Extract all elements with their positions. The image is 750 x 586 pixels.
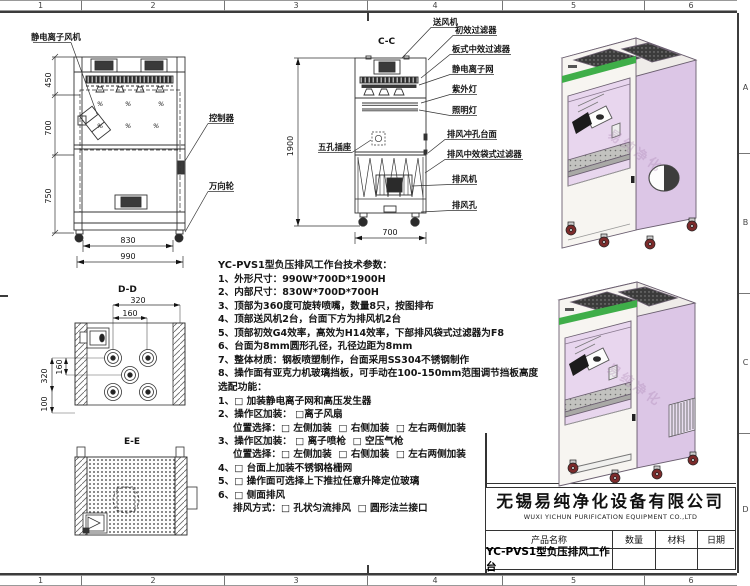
zone-number: 5 (503, 575, 645, 586)
label-controller: 控制器 (209, 113, 235, 123)
zone-number: 5 (503, 0, 645, 11)
spec-item: 2、内部尺寸：830W*700D*700H (218, 286, 518, 299)
zone-divider (739, 153, 750, 154)
zone-divider (739, 433, 750, 434)
zone-number: 2 (82, 0, 225, 11)
center-fold-mark-left (0, 295, 8, 297)
spec-item: 8、操作面有亚克力机玻璃挡板，可手动在100-150mm范围调节挡板高度 (218, 367, 518, 380)
spec-item: 4、顶部送风机2台，台面下方为排风机2台 (218, 313, 518, 326)
option-item: 2、操作区加装： □离子风扇 (218, 408, 518, 421)
svg-text:%: % (153, 122, 159, 130)
door-latch (632, 414, 636, 421)
section-view-drawing: C-C (278, 14, 538, 254)
dd-view-title: D-D (118, 285, 137, 295)
zone-number: 3 (225, 575, 368, 586)
label-primary-filter: 初效过滤器 (455, 25, 497, 35)
dim-700-cc: 700 (382, 228, 397, 237)
dim-1900: 1900 (286, 136, 295, 156)
label-plate-medium-filter: 板式中效过滤器 (452, 44, 511, 54)
render-bottom: 易纯净化 (543, 262, 715, 492)
spec-item: 5、顶部初效G4效率，高效为H14效率，下部排风袋式过滤器为F8 (218, 327, 518, 340)
spec-item: 6、台面为8mm圆形孔径，孔径边距为8mm (218, 340, 518, 353)
quantity-value (613, 549, 656, 569)
option-item: 3、操作区加装： □ 离子喷枪 □ 空压气枪 (218, 435, 518, 448)
label-perforated-worktop: 排风冲孔台面 (447, 129, 497, 139)
render-top: 易纯净化 (548, 18, 713, 263)
center-fold-mark-bottom (367, 565, 369, 573)
dim-700: 700 (44, 120, 53, 135)
spec-item: 7、整体材质：钢板喷塑制作，台面采用SS304不锈钢制作 (218, 354, 518, 367)
zone-column-right: A B C D (737, 13, 750, 573)
option-item: 排风方式：□ 孔状匀流排风 □ 圆形法兰接口 (218, 502, 518, 515)
zone-strip-top: 1 2 3 4 5 6 (0, 0, 737, 13)
brand-mark (568, 65, 577, 68)
label-lighting-lamp: 照明灯 (452, 105, 478, 115)
door-latch (631, 176, 635, 183)
dim-320-top: 320 (130, 296, 145, 305)
col-material: 材料 (656, 531, 698, 549)
zone-number: 4 (368, 0, 503, 11)
label-exhaust-fan: 排风机 (452, 174, 478, 184)
label-exhaust-bag-filter: 排风中效袋式过滤器 (447, 149, 522, 159)
zone-letter: C (739, 358, 750, 367)
side-louver-vent (669, 398, 695, 437)
section-view-title: C-C (378, 37, 396, 47)
company-cell: 无锡易纯净化设备有限公司 WUXI YICHUN PURIFICATION EQ… (486, 488, 735, 531)
svg-text:%: % (125, 100, 131, 108)
dim-320-left: 320 (40, 368, 49, 383)
dim-990: 990 (120, 252, 135, 261)
option-item: 位置选择：□ 左侧加装 □ 右侧加装 □ 左右两侧加装 (218, 422, 518, 435)
spec-item: 3、顶部为360度可旋转喷嘴，数量8只，按图排布 (218, 300, 518, 313)
zone-letter: B (739, 218, 750, 227)
brand-mark (565, 308, 574, 311)
label-electrostatic-ion-fan: 静电离子风机 (31, 32, 81, 42)
zone-number: 6 (645, 0, 737, 11)
option-item: 4、□ 台面上加装不锈钢格栅网 (218, 462, 518, 475)
label-exhaust-hole: 排风孔 (452, 200, 478, 210)
spec-item: 1、外形尺寸：990W*700D*1900H (218, 273, 518, 286)
company-name-en: WUXI YICHUN PURIFICATION EQUIPMENT CO.,L… (486, 513, 735, 521)
svg-text:%: % (97, 122, 103, 130)
drawing-sheet: 1 2 3 4 5 6 1 2 3 4 5 6 A B C D (0, 0, 750, 586)
dim-830: 830 (120, 236, 135, 245)
option-item: 6、□ 侧面排风 (218, 489, 518, 502)
title-block: 无锡易纯净化设备有限公司 WUXI YICHUN PURIFICATION EQ… (485, 487, 736, 570)
label-ion-net: 静电离子网 (452, 64, 494, 74)
dim-450: 450 (44, 72, 53, 87)
technical-specs: YC-PVS1型负压排风工作台技术参数： 1、外形尺寸：990W*700D*19… (218, 259, 518, 516)
front-view-drawing: %%% %%% 450 700 750 830 990 静电离子风机 控制器 万 (25, 28, 237, 273)
option-item: 1、□ 加装静电离子网和高压发生器 (218, 395, 518, 408)
dim-160-top: 160 (122, 309, 137, 318)
svg-text:%: % (158, 100, 164, 108)
svg-text:%: % (97, 100, 103, 108)
company-name-cn: 无锡易纯净化设备有限公司 (486, 491, 735, 513)
material-value (656, 549, 698, 569)
ee-view-drawing: E-E (40, 430, 220, 570)
title-block-value-row: YC-PVS1型负压排风工作台 (486, 549, 735, 569)
zone-divider (739, 293, 750, 294)
dim-100-left: 100 (40, 396, 49, 411)
label-uv-lamp: 紫外灯 (452, 84, 478, 94)
specs-title: YC-PVS1型负压排风工作台技术参数： (218, 259, 518, 273)
dd-view-drawing: D-D (30, 278, 220, 430)
date-value (698, 549, 734, 569)
product-name: YC-PVS1型负压排风工作台 (486, 549, 613, 569)
zone-letter: A (739, 83, 750, 92)
label-socket: 五孔插座 (318, 142, 352, 152)
ee-view-title: E-E (124, 437, 140, 447)
option-item: 5、□ 操作面可选择上下推拉任意升降定位玻璃 (218, 475, 518, 488)
col-quantity: 数量 (613, 531, 656, 549)
zone-number: 3 (225, 0, 368, 11)
dim-750: 750 (44, 188, 53, 203)
options-title: 选配功能： (218, 381, 518, 395)
svg-text:%: % (125, 122, 131, 130)
zone-number: 1 (0, 575, 82, 586)
option-item: 位置选择：□ 左侧加装 □ 右侧加装 □ 左右两侧加装 (218, 448, 518, 461)
callout-leaders (402, 28, 523, 213)
zone-strip-bottom: 1 2 3 4 5 6 (0, 573, 737, 586)
zone-number: 6 (645, 575, 737, 586)
zone-number: 4 (368, 575, 503, 586)
dim-160-left: 160 (55, 359, 64, 374)
label-caster: 万向轮 (208, 181, 235, 191)
col-date: 日期 (698, 531, 734, 549)
zone-number: 1 (0, 0, 82, 11)
zone-letter: D (739, 505, 750, 514)
zone-number: 2 (82, 575, 225, 586)
